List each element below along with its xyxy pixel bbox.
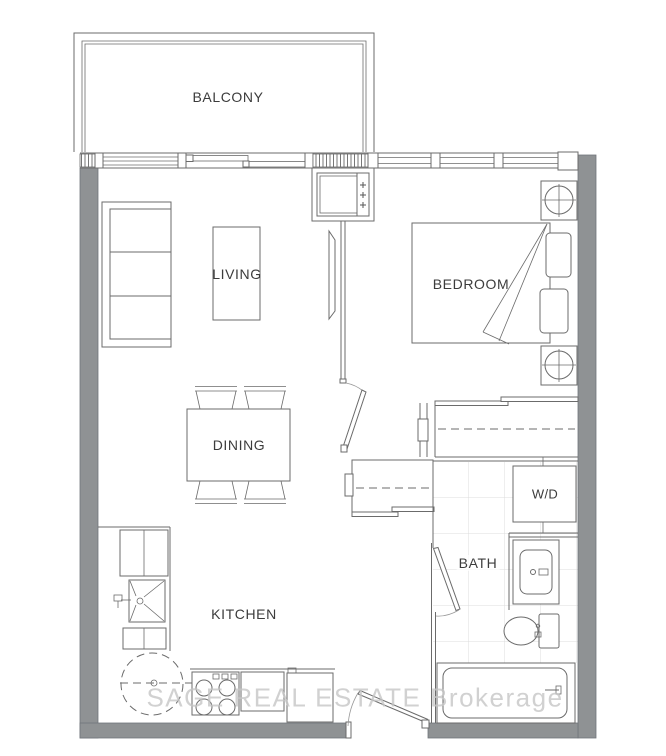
nightstand-top bbox=[541, 181, 577, 220]
bedroom-door bbox=[341, 383, 366, 452]
floor-plan: BALCONY LIVING BEDROOM DINING KITCHEN W/… bbox=[0, 0, 666, 756]
vent-plus-icon bbox=[360, 182, 366, 208]
label-laundry: W/D bbox=[532, 487, 558, 502]
bedroom-partition bbox=[329, 221, 366, 452]
faucet-icon bbox=[114, 595, 122, 601]
nightstand-bottom bbox=[541, 346, 577, 385]
label-living: LIVING bbox=[212, 266, 262, 282]
balcony-sliding-door bbox=[186, 155, 305, 167]
bed-pillows bbox=[540, 233, 571, 333]
kitchen-sink bbox=[114, 580, 165, 622]
window-band bbox=[80, 152, 578, 170]
sofa bbox=[102, 202, 171, 347]
kitchen-cabinet-upper bbox=[120, 530, 168, 576]
hall-closet bbox=[345, 460, 434, 518]
label-bedroom: BEDROOM bbox=[433, 276, 510, 292]
label-balcony: BALCONY bbox=[192, 89, 263, 105]
label-kitchen: KITCHEN bbox=[211, 606, 277, 622]
kitchen-cabinet-lower bbox=[123, 628, 166, 649]
label-dining: DINING bbox=[213, 437, 266, 453]
door-hinge bbox=[422, 720, 429, 728]
sliding-door-panel bbox=[329, 231, 335, 319]
watermark: SAGE REAL ESTATE Brokerage bbox=[146, 683, 563, 714]
hvac-closet bbox=[312, 168, 374, 221]
floor-plan-drawing bbox=[0, 0, 666, 756]
bedroom-closet bbox=[418, 397, 578, 461]
label-bath: BATH bbox=[457, 555, 500, 571]
